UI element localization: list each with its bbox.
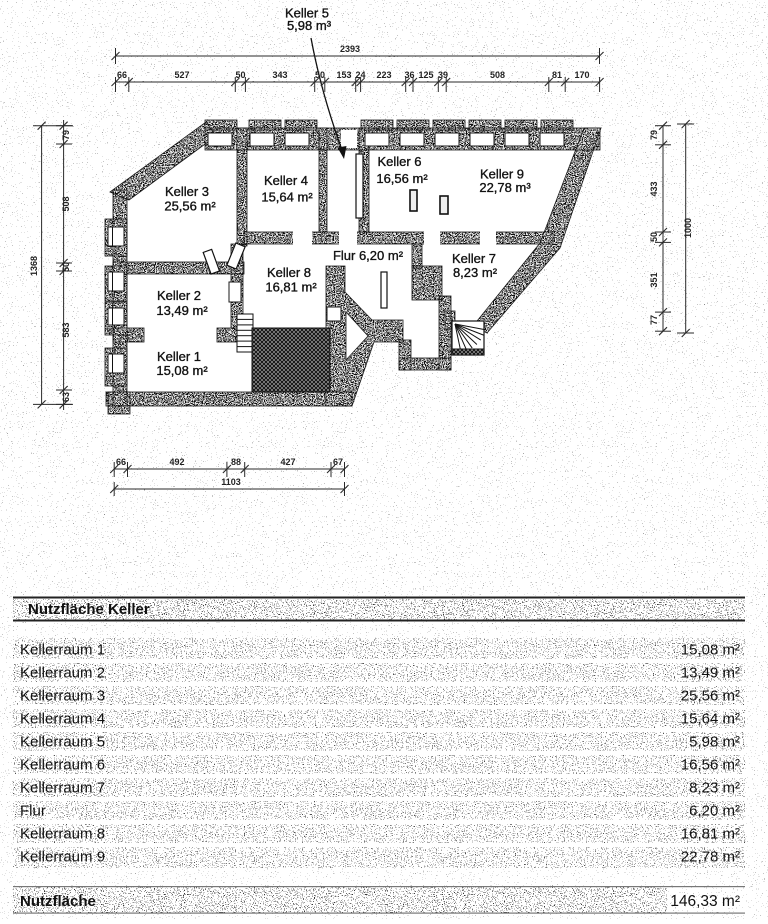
svg-text:22,78 m³: 22,78 m³	[479, 180, 531, 195]
svg-text:39: 39	[438, 70, 448, 80]
svg-text:50: 50	[649, 232, 659, 242]
svg-text:5,98 m²: 5,98 m²	[689, 734, 740, 751]
svg-text:25,56 m²: 25,56 m²	[164, 199, 216, 214]
svg-text:79: 79	[61, 130, 71, 140]
svg-text:22,78 m²: 22,78 m²	[681, 849, 740, 866]
svg-text:15,64 m²: 15,64 m²	[261, 190, 313, 205]
svg-text:Keller 4: Keller 4	[264, 173, 308, 188]
svg-text:Kellerraum 7: Kellerraum 7	[20, 780, 105, 797]
svg-text:63: 63	[61, 392, 71, 402]
svg-text:13,49 m²: 13,49 m²	[156, 303, 208, 318]
svg-text:Keller 1: Keller 1	[157, 349, 201, 364]
svg-text:15,64 m²: 15,64 m²	[681, 711, 740, 728]
svg-text:146,33 m²: 146,33 m²	[670, 893, 740, 910]
svg-text:Keller 2: Keller 2	[157, 288, 201, 303]
svg-text:Keller 3: Keller 3	[165, 184, 209, 199]
svg-text:Kellerraum 1: Kellerraum 1	[20, 642, 105, 659]
svg-text:50: 50	[235, 70, 245, 80]
svg-text:170: 170	[574, 70, 589, 80]
svg-text:Kellerraum 5: Kellerraum 5	[20, 734, 105, 751]
svg-text:67: 67	[333, 457, 343, 467]
svg-text:Kellerraum 2: Kellerraum 2	[20, 665, 105, 682]
svg-text:81: 81	[552, 70, 562, 80]
svg-text:223: 223	[376, 70, 391, 80]
svg-text:Kellerraum 3: Kellerraum 3	[20, 688, 105, 705]
svg-text:6,20 m²: 6,20 m²	[689, 803, 740, 820]
svg-text:16,56 m²: 16,56 m²	[376, 171, 428, 186]
svg-text:Keller 7: Keller 7	[452, 251, 496, 266]
svg-text:Flur: Flur	[20, 803, 46, 820]
svg-text:5,98 m³: 5,98 m³	[287, 18, 332, 33]
svg-text:Nutzfläche: Nutzfläche	[20, 893, 96, 910]
svg-text:88: 88	[231, 457, 241, 467]
svg-text:77: 77	[649, 315, 659, 325]
svg-text:1000: 1000	[683, 218, 693, 238]
svg-text:583: 583	[61, 322, 71, 337]
svg-text:Kellerraum 9: Kellerraum 9	[20, 849, 105, 866]
svg-text:79: 79	[649, 130, 659, 140]
svg-text:492: 492	[169, 457, 184, 467]
svg-text:343: 343	[272, 70, 287, 80]
svg-text:508: 508	[61, 196, 71, 211]
svg-text:351: 351	[649, 272, 659, 287]
svg-text:Kellerraum 8: Kellerraum 8	[20, 826, 105, 843]
svg-text:8,23 m²: 8,23 m²	[689, 780, 740, 797]
svg-text:15,08 m²: 15,08 m²	[681, 642, 740, 659]
svg-text:508: 508	[490, 70, 505, 80]
svg-text:Flur 6,20 m²: Flur 6,20 m²	[333, 248, 404, 263]
svg-text:16,81 m²: 16,81 m²	[681, 826, 740, 843]
svg-text:Keller 8: Keller 8	[267, 265, 311, 280]
svg-text:16,56 m²: 16,56 m²	[681, 757, 740, 774]
svg-text:66: 66	[116, 457, 126, 467]
svg-text:Nutzfläche Keller: Nutzfläche Keller	[28, 601, 150, 618]
svg-text:153: 153	[336, 70, 351, 80]
svg-text:125: 125	[418, 70, 433, 80]
svg-text:Kellerraum 4: Kellerraum 4	[20, 711, 105, 728]
svg-text:527: 527	[174, 70, 189, 80]
svg-text:1103: 1103	[221, 477, 241, 487]
svg-text:50: 50	[61, 262, 71, 272]
svg-text:2393: 2393	[340, 44, 360, 54]
svg-text:66: 66	[117, 70, 127, 80]
svg-text:433: 433	[649, 181, 659, 196]
svg-text:1368: 1368	[29, 256, 39, 276]
svg-text:24: 24	[355, 70, 365, 80]
svg-text:8,23 m²: 8,23 m²	[453, 265, 498, 280]
svg-text:13,49 m²: 13,49 m²	[681, 665, 740, 682]
svg-text:427: 427	[280, 457, 295, 467]
svg-text:25,56 m²: 25,56 m²	[681, 688, 740, 705]
svg-text:Kellerraum 6: Kellerraum 6	[20, 757, 105, 774]
svg-text:15,08 m²: 15,08 m²	[156, 363, 208, 378]
svg-text:50: 50	[315, 70, 325, 80]
svg-text:Keller 6: Keller 6	[377, 154, 421, 169]
svg-text:36: 36	[404, 70, 414, 80]
svg-text:16,81 m²: 16,81 m²	[265, 280, 317, 295]
